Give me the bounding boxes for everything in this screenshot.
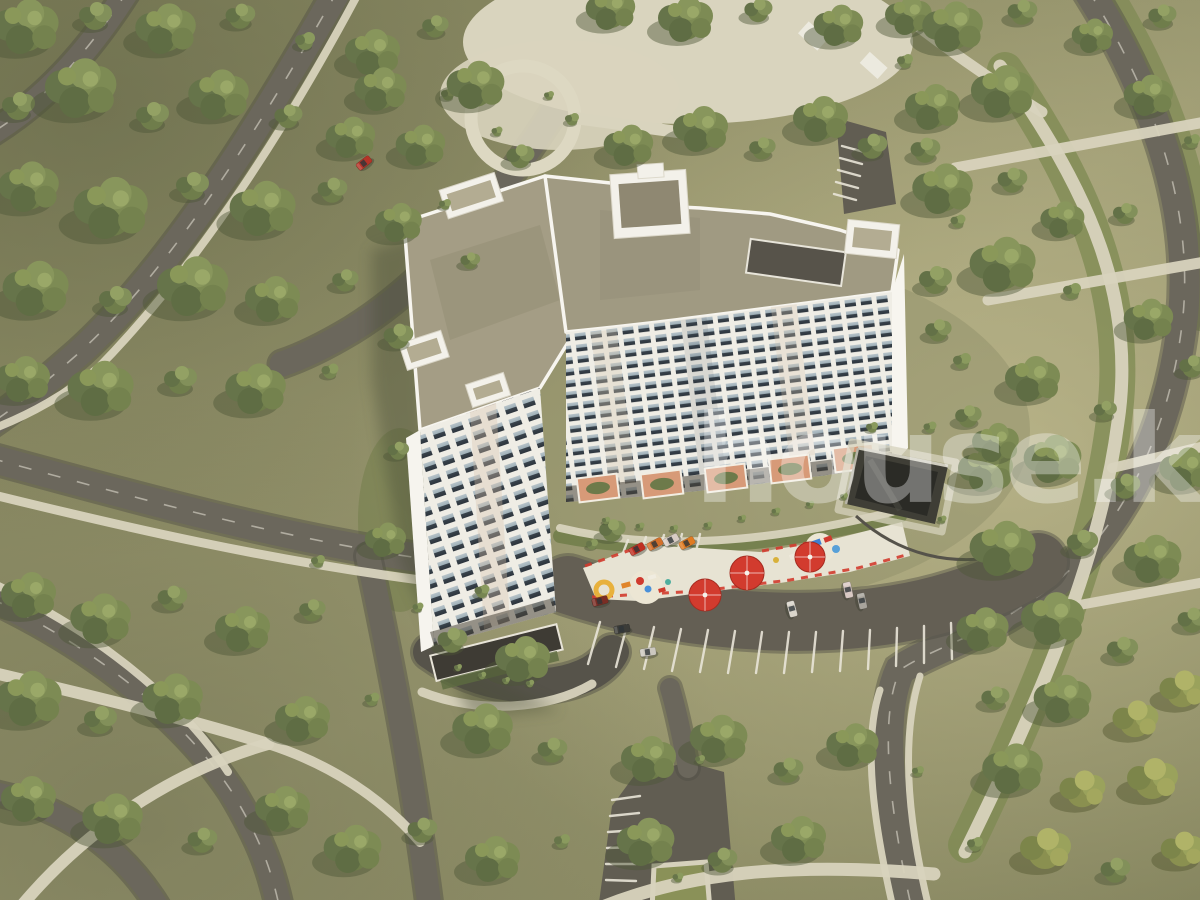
umbrella-center: [808, 555, 813, 560]
entrance-canopy: [641, 470, 684, 499]
play-equipment: [832, 545, 840, 553]
play-equipment: [665, 579, 671, 585]
play-equipment: [636, 577, 644, 585]
car-glass: [619, 626, 625, 633]
car-glass: [645, 649, 651, 656]
scene-svg: house.kg: [0, 0, 1200, 900]
umbrella-center: [703, 593, 708, 598]
play-equipment: [773, 557, 779, 563]
rooftop-box: [844, 219, 899, 258]
playground-umbrella: [730, 556, 764, 590]
parking-stripe: [896, 628, 897, 666]
entrance-canopy: [577, 474, 620, 503]
playground-umbrella: [795, 542, 825, 572]
watermark: house.kg: [694, 389, 1200, 531]
play-equipment: [645, 586, 652, 593]
playground-umbrella: [689, 579, 721, 611]
left-wing-facade: [420, 388, 556, 646]
parking-stripe: [606, 880, 636, 881]
umbrella-center: [745, 571, 750, 576]
aerial-render-image: house.kg: [0, 0, 1200, 900]
